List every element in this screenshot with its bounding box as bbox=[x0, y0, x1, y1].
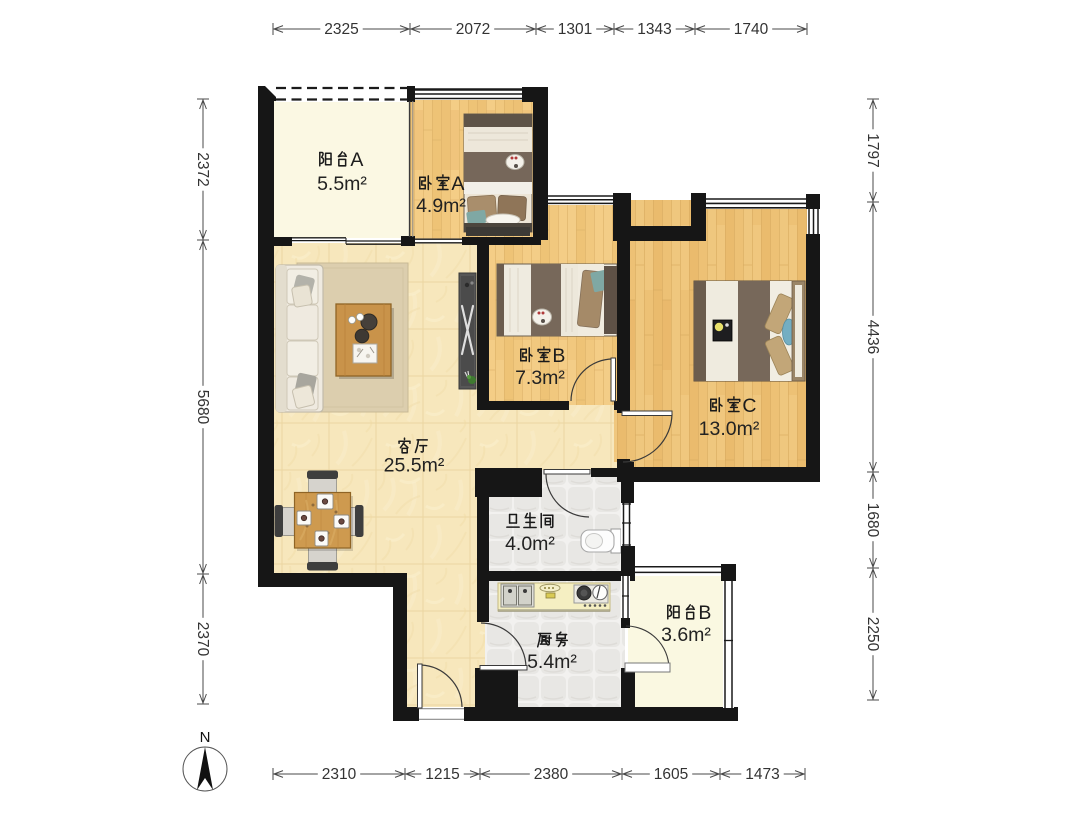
svg-text:1797: 1797 bbox=[864, 133, 881, 167]
svg-text:13.0m²: 13.0m² bbox=[699, 418, 760, 440]
svg-text:5.5m²: 5.5m² bbox=[317, 173, 367, 195]
svg-text:B: B bbox=[698, 602, 711, 624]
svg-text:5680: 5680 bbox=[194, 390, 211, 425]
svg-text:1680: 1680 bbox=[864, 503, 881, 538]
svg-text:2072: 2072 bbox=[456, 21, 490, 38]
svg-text:25.5m²: 25.5m² bbox=[384, 454, 445, 476]
svg-text:1343: 1343 bbox=[637, 21, 671, 38]
svg-text:4.0m²: 4.0m² bbox=[505, 533, 555, 555]
svg-text:A: A bbox=[350, 149, 363, 171]
svg-text:B: B bbox=[552, 345, 565, 367]
svg-text:1215: 1215 bbox=[425, 766, 459, 783]
svg-text:2380: 2380 bbox=[534, 766, 569, 783]
svg-text:4436: 4436 bbox=[864, 320, 881, 354]
svg-text:2310: 2310 bbox=[322, 766, 357, 783]
svg-text:2372: 2372 bbox=[194, 152, 211, 186]
svg-text:A: A bbox=[451, 173, 464, 195]
svg-text:3.6m²: 3.6m² bbox=[661, 624, 711, 646]
svg-text:2370: 2370 bbox=[194, 622, 211, 657]
svg-text:1605: 1605 bbox=[654, 766, 688, 783]
svg-text:1473: 1473 bbox=[745, 766, 779, 783]
svg-text:2250: 2250 bbox=[864, 617, 881, 652]
svg-text:2325: 2325 bbox=[324, 21, 358, 38]
svg-text:1301: 1301 bbox=[558, 21, 592, 38]
svg-text:C: C bbox=[742, 395, 756, 417]
svg-text:7.3m²: 7.3m² bbox=[515, 367, 565, 389]
svg-text:5.4m²: 5.4m² bbox=[527, 651, 577, 673]
svg-text:N: N bbox=[200, 729, 211, 746]
svg-text:1740: 1740 bbox=[734, 21, 769, 38]
svg-text:4.9m²: 4.9m² bbox=[416, 195, 466, 217]
